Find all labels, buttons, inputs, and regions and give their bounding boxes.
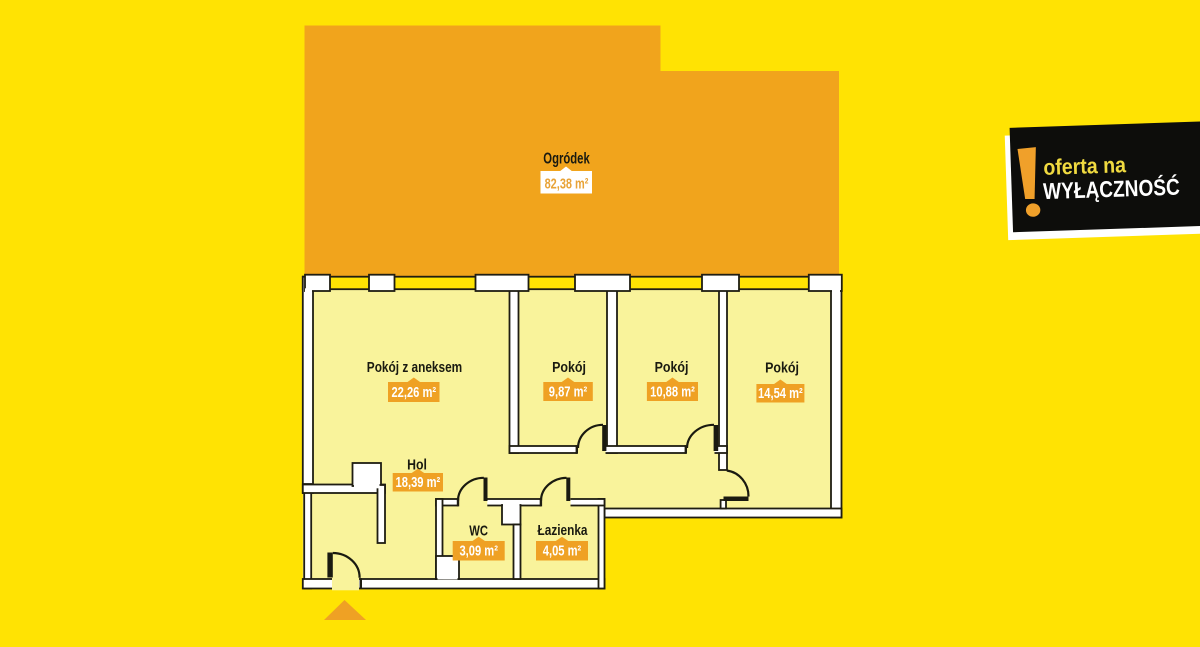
svg-text:14,54 m²: 14,54 m² bbox=[758, 385, 803, 402]
svg-text:WC: WC bbox=[469, 522, 488, 539]
svg-text:82,38 m²: 82,38 m² bbox=[545, 175, 589, 192]
svg-text:4,05 m²: 4,05 m² bbox=[543, 542, 582, 559]
svg-text:22,26 m²: 22,26 m² bbox=[391, 384, 436, 401]
svg-text:Łazienka: Łazienka bbox=[538, 522, 588, 539]
svg-text:Pokój z aneksem: Pokój z aneksem bbox=[367, 359, 462, 376]
svg-text:Ogródek: Ogródek bbox=[543, 150, 590, 167]
svg-text:18,39 m²: 18,39 m² bbox=[396, 474, 441, 491]
svg-text:9,87 m²: 9,87 m² bbox=[549, 383, 588, 400]
svg-text:3,09 m²: 3,09 m² bbox=[459, 542, 498, 559]
svg-text:Pokój: Pokój bbox=[655, 359, 689, 375]
svg-text:Pokój: Pokój bbox=[765, 359, 799, 375]
svg-text:Pokój: Pokój bbox=[552, 359, 586, 375]
svg-text:oferta na: oferta na bbox=[1043, 153, 1127, 180]
svg-text:WYŁĄCZNOŚĆ: WYŁĄCZNOŚĆ bbox=[1043, 174, 1181, 205]
svg-text:10,88 m²: 10,88 m² bbox=[650, 383, 695, 400]
